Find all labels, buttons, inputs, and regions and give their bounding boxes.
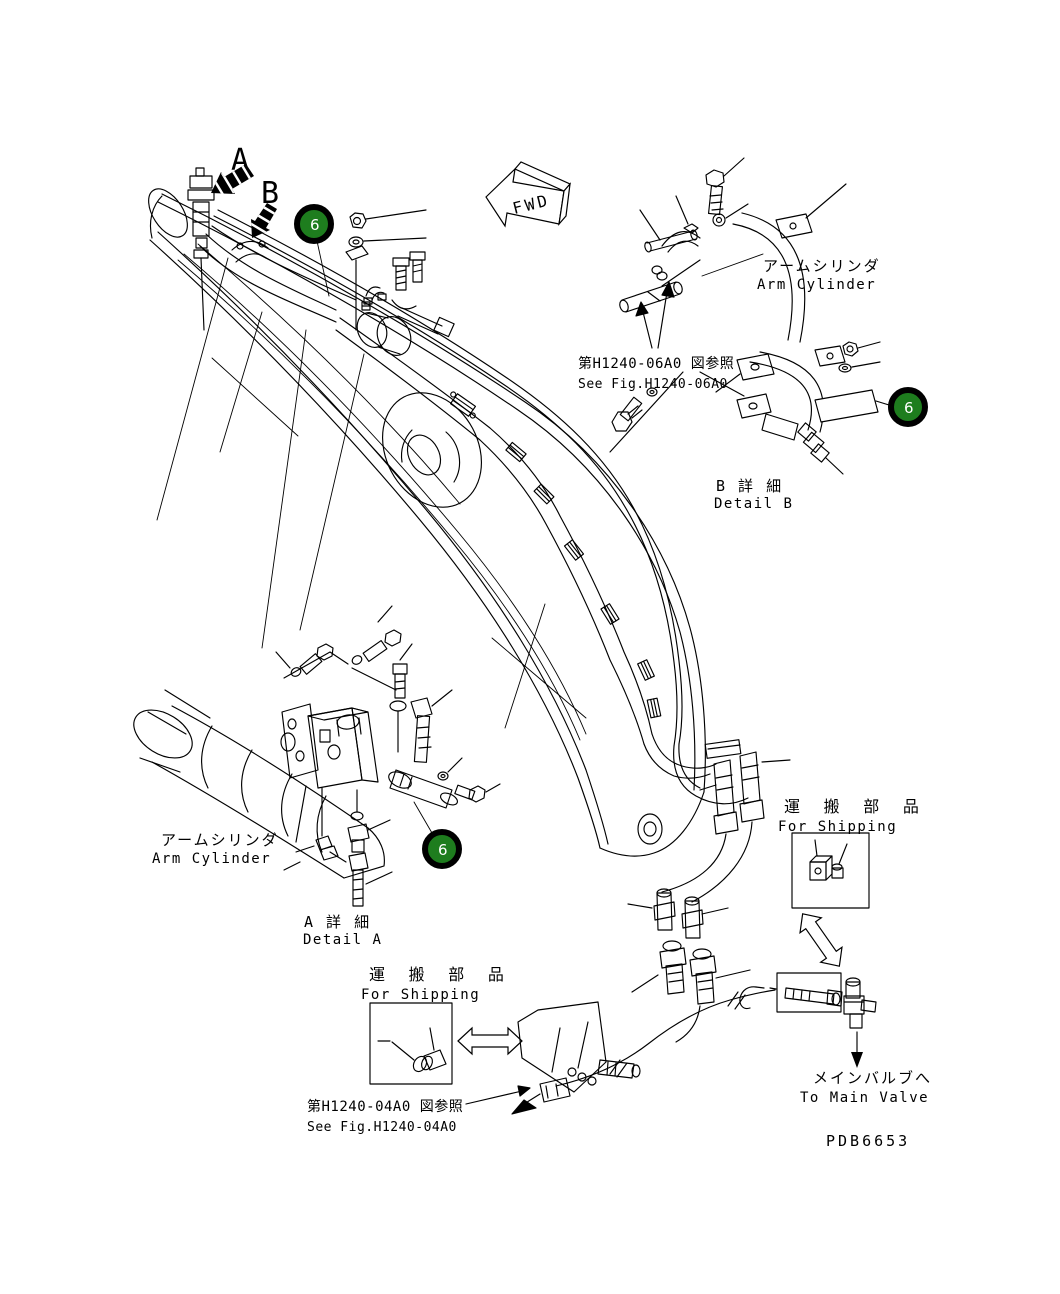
tube-fitting-icon [740,752,764,822]
plug-fitting-icon [390,644,412,752]
elbow-fitting-icon [844,978,876,1028]
callout-6-detail-b[interactable]: 6 [891,390,925,424]
transfer-arrow-icon [458,1028,522,1054]
reference-arrow [466,1086,530,1104]
callout-number: 6 [438,841,448,859]
boom-foot [600,792,704,856]
pipe-clamp [601,604,619,625]
plug-fitting-icon [832,844,847,878]
transfer-arrow-icon [792,906,850,973]
to-main-valve-arrow-icon [851,1032,863,1068]
detail-b-reference-en: See Fig.H1240-06A0 [578,377,728,392]
drawing-number: PDB6653 [826,1132,910,1150]
boom-structure [141,182,706,856]
reference-arrows [636,282,674,348]
shipping-left: 運 搬 部 品 For Shipping [307,965,640,1135]
bolt-icon [276,644,348,678]
plug-fitting-icon [810,840,832,880]
tag-plate [815,390,889,422]
shipping-box [777,973,841,1012]
shipping-left-label-en: For Shipping [361,987,480,1003]
callout-number: 6 [904,399,914,417]
detail-a-title-en: Detail A [303,932,382,948]
elbow-fitting-icon [284,836,338,870]
hose-fitting-icon [785,988,842,1006]
detail-b-title-jp: B 詳 細 [716,477,783,495]
valve-block [281,704,378,842]
hose-nipple-icon [628,889,675,930]
shipping-left-reference-jp: 第H1240-04A0 図参照 [307,1098,463,1115]
detail-b-component-en: Arm Cylinder [757,277,876,293]
clamp-saddle [662,196,700,252]
shipping-box [370,1003,452,1084]
to-main-valve-jp: メインバルブへ [813,1069,932,1087]
shipping-box [792,833,869,908]
detail-a-component-jp: アームシリンダ [161,831,279,849]
boom-boss [363,375,501,524]
shipping-left-reference-en: See Fig.H1240-04A0 [307,1120,457,1135]
pipe-clamp [638,660,655,681]
to-main-valve-en: To Main Valve [800,1090,929,1106]
detail-b-component-jp: アームシリンダ [763,257,881,275]
tag-plate [346,246,368,330]
tube-fitting-icon [714,760,738,834]
callout-number: 6 [310,216,320,234]
washer-icon [349,237,426,247]
pipe-clamp [446,391,480,420]
detail-b-reference-jp: 第H1240-06A0 図参照 [578,355,734,372]
tube-fitting-icon [632,941,686,994]
view-b-marker: B [248,176,284,238]
callout-6-detail-a[interactable]: 6 [414,802,459,866]
pipe-clamp [534,484,554,504]
tube-fitting-icon [411,690,452,762]
hose-run [556,740,790,1086]
fwd-arrow: FWD [486,162,570,226]
hose-nipple-icon [386,758,462,808]
detail-b-title-en: Detail B [714,496,793,512]
detail-a-title-jp: A 詳 細 [304,913,371,931]
rod-icon [618,260,700,313]
shipping-bag [512,1002,640,1114]
detail-a-component-en: Arm Cylinder [152,851,271,867]
callout-6-boom[interactable]: 6 [297,207,331,296]
bolt-icon [455,784,500,802]
bolt-icon [410,252,425,282]
bushing-icon [652,266,667,280]
bolt-icon [706,158,744,215]
pipe-clamp [647,698,661,718]
nut-icon [350,210,426,228]
nut-icon [843,342,880,356]
arm-cylinder-barrel [125,690,384,878]
hose-nipple-icon [598,1060,640,1078]
washer-icon [839,362,880,372]
bolt-icon [393,258,409,290]
plug-fitting-icon [420,1028,446,1071]
pipe-clamp [705,740,741,759]
fwd-arrow-icon [486,162,570,226]
view-a-marker: A [211,143,254,198]
shipping-left-label-jp: 運 搬 部 品 [369,965,511,984]
parts-diagram-page: A B FWD 6 [0,0,1060,1294]
bolt-icon [351,606,401,690]
shipping-right-label-jp: 運 搬 部 品 [784,797,926,816]
shipping-right: 運 搬 部 品 For Shipping [740,797,932,1106]
hose-nipple-icon [682,897,728,938]
washer-icon [713,204,748,226]
detail-b-parts [610,158,889,474]
